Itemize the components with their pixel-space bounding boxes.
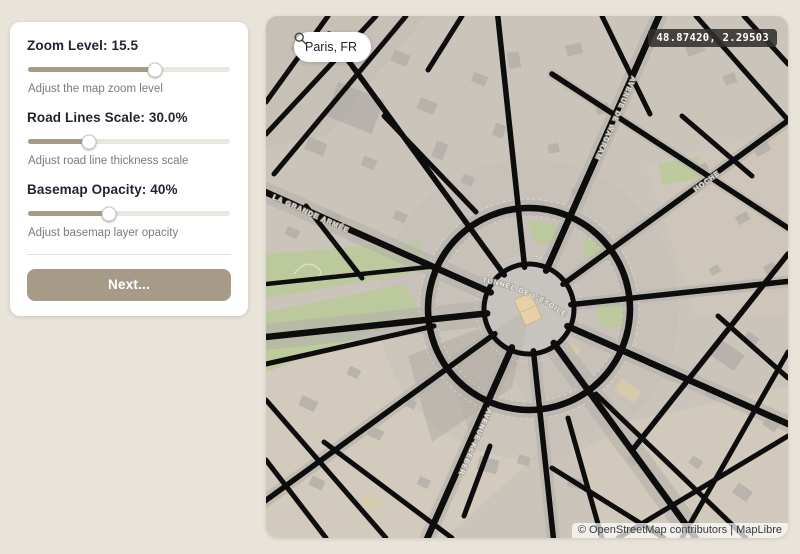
grande-armee-label: LA GRANDE ARMÉE xyxy=(271,193,351,235)
controls-panel: Zoom Level: 15.5 Adjust the map zoom lev… xyxy=(10,22,248,316)
next-button[interactable]: Next... xyxy=(27,269,231,301)
slider-fill xyxy=(28,139,89,144)
zoom-level-control: Zoom Level: 15.5 Adjust the map zoom lev… xyxy=(27,38,231,95)
road-scale-heading: Road Lines Scale: 30.0% xyxy=(27,110,231,125)
wagram-label: AVENUE DE WAGRAM xyxy=(593,75,636,161)
road-scale-helper: Adjust road line thickness scale xyxy=(28,155,230,167)
zoom-level-slider[interactable] xyxy=(28,62,230,77)
map-attribution[interactable]: © OpenStreetMap contributors | MapLibre xyxy=(572,523,788,538)
basemap-opacity-control: Basemap Opacity: 40% Adjust basemap laye… xyxy=(27,182,231,239)
basemap-opacity-slider[interactable] xyxy=(28,206,230,221)
zoom-level-heading: Zoom Level: 15.5 xyxy=(27,38,231,53)
coordinates-badge: 48.87420, 2.29503 xyxy=(648,29,777,47)
slider-handle[interactable] xyxy=(81,134,96,149)
map-canvas[interactable]: TUNNEL DE L'ÉTOILE LA GRANDE ARMÉE AVENU… xyxy=(266,16,788,538)
basemap-opacity-helper: Adjust basemap layer opacity xyxy=(28,227,230,239)
road-scale-slider[interactable] xyxy=(28,134,230,149)
search-value[interactable]: Paris, FR xyxy=(305,40,357,54)
slider-handle[interactable] xyxy=(101,206,116,221)
map-search-box[interactable]: Paris, FR xyxy=(294,32,371,62)
zoom-level-helper: Adjust the map zoom level xyxy=(28,83,230,95)
slider-fill xyxy=(28,67,155,72)
map-svg: TUNNEL DE L'ÉTOILE LA GRANDE ARMÉE AVENU… xyxy=(266,16,788,538)
panel-divider xyxy=(27,254,231,255)
search-icon xyxy=(294,32,307,45)
basemap-opacity-heading: Basemap Opacity: 40% xyxy=(27,182,231,197)
slider-fill xyxy=(28,211,109,216)
slider-handle[interactable] xyxy=(148,62,163,77)
road-scale-control: Road Lines Scale: 30.0% Adjust road line… xyxy=(27,110,231,167)
